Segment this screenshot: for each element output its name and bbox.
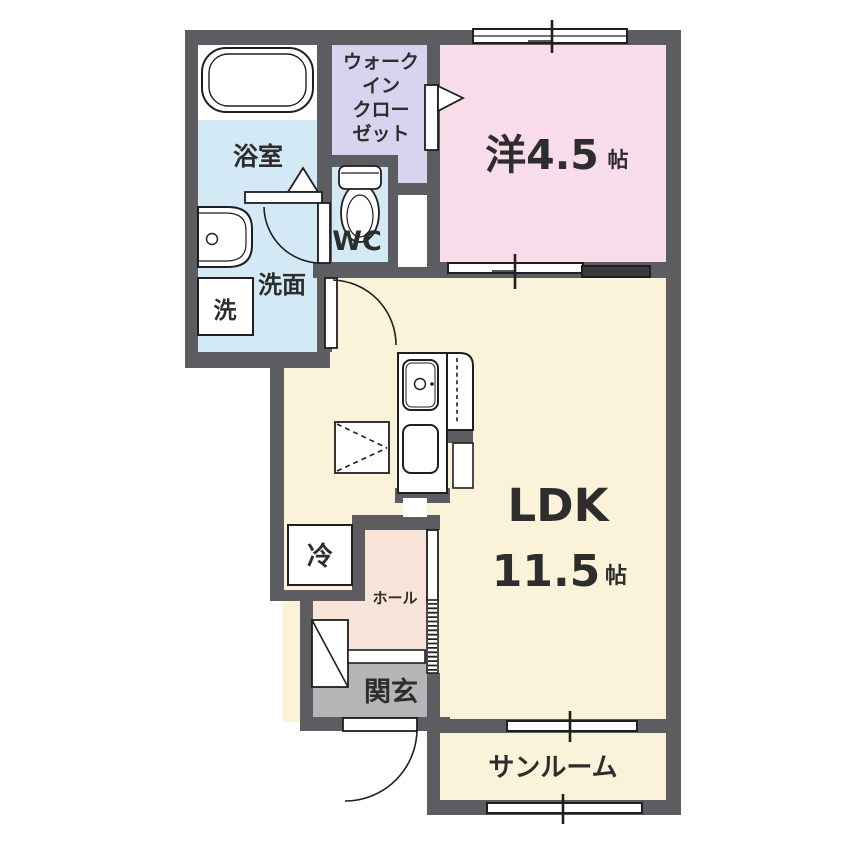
wall-washblock-bottom xyxy=(185,352,330,368)
label-sunroom: サンルーム xyxy=(488,753,617,783)
wall-left-upper xyxy=(185,30,198,368)
door-hall-slider xyxy=(427,530,438,673)
storage-niche xyxy=(398,195,427,267)
wall-ldk-left xyxy=(270,352,284,601)
label-hall: ホール xyxy=(372,589,417,607)
faucet-icon xyxy=(415,379,426,390)
kitchen-stove xyxy=(403,425,438,473)
wall-hall-top xyxy=(352,515,440,530)
wall-western-left xyxy=(427,30,440,278)
wash-basin xyxy=(198,207,252,267)
wall-wic-ext-bottom xyxy=(398,183,428,195)
room-walk-in-closet-ext xyxy=(398,155,428,185)
label-walk-in-closet-4: ゼット xyxy=(352,122,409,145)
label-entrance: 関玄 xyxy=(364,676,418,708)
label-washroom: 洗面 xyxy=(258,271,306,299)
label-walk-in-closet-1: ウォーク xyxy=(343,51,419,73)
wall-entrance-left xyxy=(300,590,313,731)
bathtub xyxy=(202,48,313,112)
floor-plan-page: ウォーク イン クロー ゼット 浴室 洗面 洗 WC 洋4.5 帖 LDK 11… xyxy=(0,0,846,846)
dashed-furniture xyxy=(335,422,389,473)
label-bathroom: 浴室 xyxy=(233,142,283,171)
label-ldk: LDK xyxy=(508,479,611,532)
label-western-room-unit: 帖 xyxy=(608,148,629,172)
label-ldk-unit: 帖 xyxy=(605,564,627,589)
wall-right xyxy=(666,30,681,815)
label-refrigerator: 冷 xyxy=(307,541,333,572)
wall-wc-right xyxy=(388,155,398,277)
wall-fridge-bottom xyxy=(270,590,365,601)
kitchen-wall-opening xyxy=(403,498,427,517)
shoe-cabinet xyxy=(312,620,348,687)
label-walk-in-closet-3: クロー xyxy=(352,99,409,121)
label-wc: WC xyxy=(332,226,382,257)
kitchen-cabinet xyxy=(453,443,473,488)
label-ldk-size: 11.5 xyxy=(492,546,601,597)
label-walk-in-closet-2: イン xyxy=(362,75,400,97)
floor-plan-drawing: ウォーク イン クロー ゼット 浴室 洗面 洗 WC 洋4.5 帖 LDK 11… xyxy=(0,0,846,846)
kitchen-counter xyxy=(398,353,473,493)
label-western-room: 洋4.5 xyxy=(485,131,599,179)
label-washing-machine: 洗 xyxy=(214,298,237,324)
entrance-step xyxy=(348,650,425,663)
door-front-entrance xyxy=(343,718,417,801)
